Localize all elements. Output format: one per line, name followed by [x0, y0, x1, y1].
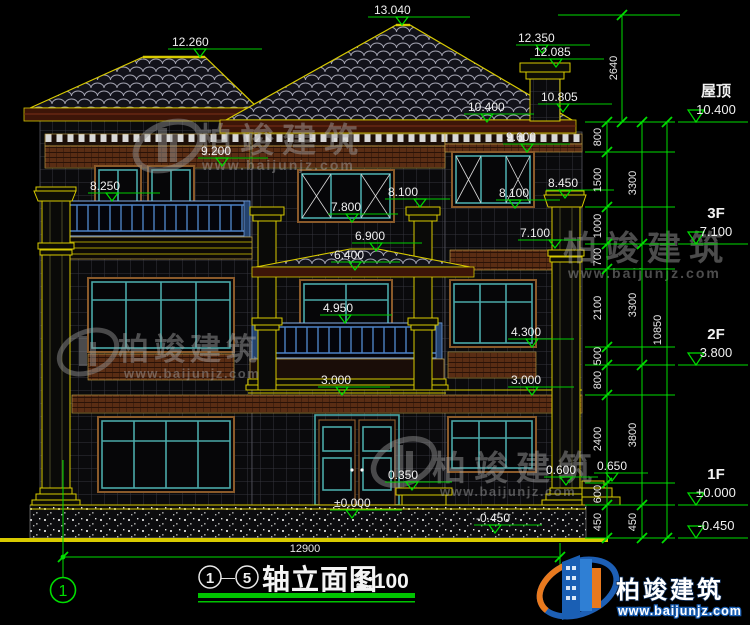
elevation-canvas: 柏竣建筑 www.baijunjz.com 柏竣建筑 www.baijunjz.…: [0, 0, 750, 625]
dim-floor: 3300: [627, 293, 639, 317]
dim-width: 12900: [290, 543, 321, 555]
elevation-value: 12.085: [534, 45, 571, 59]
elevation-value: 9.600: [506, 130, 536, 144]
level-name-3f: 3F: [707, 205, 725, 222]
elevation-value: 8.250: [90, 179, 120, 193]
window-1f-left: [98, 417, 234, 492]
dim-seg: 800: [592, 128, 604, 146]
watermark-url: www.baijunjz.com: [123, 366, 260, 381]
title-block: 1 — 5 轴立面图 1:100: [198, 563, 415, 603]
dim-seg: 700: [592, 248, 604, 266]
elevation-value: 0.600: [546, 463, 576, 477]
dim-top: 2640: [608, 56, 620, 80]
elevation-marker-12260: 12.260: [168, 35, 262, 57]
elevation-value: 0.350: [388, 468, 418, 482]
level-elev-1f: ±0.000: [696, 485, 736, 500]
elevation-value: 4.950: [323, 301, 353, 315]
cad-elevation-drawing: 柏竣建筑 www.baijunjz.com 柏竣建筑 www.baijunjz.…: [0, 0, 750, 625]
title-axis-dash: —: [221, 569, 235, 585]
brand-logo: 柏竣建筑 www.baijunjz.com: [531, 549, 742, 625]
elevation-value: 10.805: [541, 90, 578, 104]
level-name-2f: 2F: [707, 326, 725, 343]
elevation-value: ±0.000: [334, 496, 371, 510]
level-elev-ground: -0.450: [698, 518, 735, 533]
title-underline-thick: [198, 593, 415, 598]
level-name-1f: 1F: [707, 466, 725, 483]
dim-seg: 600: [592, 485, 604, 503]
elevation-marker-13040: 13.040: [368, 3, 470, 25]
level-labels: 屋顶 10.400 3F 7.100 2F 3.800 1F ±0.000 -0…: [678, 83, 748, 538]
elevation-value: 9.200: [201, 144, 231, 158]
watermark-url: www.baijunjz.com: [201, 157, 355, 173]
elevation-value: 12.260: [172, 35, 209, 49]
title-axis-end: 5: [243, 570, 251, 587]
dim-seg: 500: [592, 347, 604, 365]
title-underline-thin: [198, 601, 415, 603]
dim-seg: 2100: [592, 296, 604, 320]
dim-seg: 450: [592, 513, 604, 531]
level-elev-roof: 10.400: [696, 102, 736, 117]
watermark-url: www.baijunjz.com: [567, 265, 721, 281]
dim-seg: 2400: [592, 427, 604, 451]
elevation-marker-0650: 0.650: [594, 459, 648, 481]
axis-bubble-number: 1: [59, 583, 68, 600]
level-elev-2f: 3.800: [700, 345, 733, 360]
title-axis-start: 1: [206, 570, 214, 587]
elevation-value: 7.800: [331, 200, 361, 214]
ground-line: [0, 538, 608, 542]
balcony-3f: [42, 201, 252, 259]
elevation-value: 13.040: [374, 3, 411, 17]
dim-seg: 1500: [592, 168, 604, 192]
elevation-value: 8.450: [548, 176, 578, 190]
dim-floor: 450: [627, 513, 639, 531]
elevation-value: 7.100: [520, 226, 550, 240]
elevation-value: 6.400: [334, 248, 364, 262]
dim-seg: 800: [592, 371, 604, 389]
elevation-value: 0.650: [597, 459, 627, 473]
elevation-value: 4.300: [511, 325, 541, 339]
elevation-value: -0.450: [476, 511, 510, 525]
elevation-value: 3.000: [511, 373, 541, 387]
level-name-roof: 屋顶: [701, 83, 731, 100]
dim-seg: 1000: [592, 214, 604, 238]
logo-name: 柏竣建筑: [616, 576, 724, 604]
watermark-url: www.baijunjz.com: [439, 484, 576, 499]
elevation-value: 3.000: [321, 373, 351, 387]
level-elev-3f: 7.100: [700, 224, 733, 239]
dim-total-height: 10850: [652, 315, 664, 346]
dim-floor: 3800: [627, 423, 639, 447]
roof-left-wing: [24, 57, 262, 121]
elevation-value: 6.900: [355, 229, 385, 243]
logo-building-icon: [562, 555, 580, 620]
elevation-value: 8.100: [388, 185, 418, 199]
elevation-value: 12.350: [518, 31, 555, 45]
elevation-value: 8.100: [499, 186, 529, 200]
logo-url: www.baijunjz.com: [617, 604, 742, 618]
dim-floor: 3300: [627, 171, 639, 195]
watermark-name: 柏竣建筑: [118, 332, 262, 367]
drawing-scale: 1:100: [355, 570, 409, 593]
elevation-value: 10.400: [468, 100, 505, 114]
watermark-top: 柏竣建筑 www.baijunjz.com: [128, 112, 366, 180]
